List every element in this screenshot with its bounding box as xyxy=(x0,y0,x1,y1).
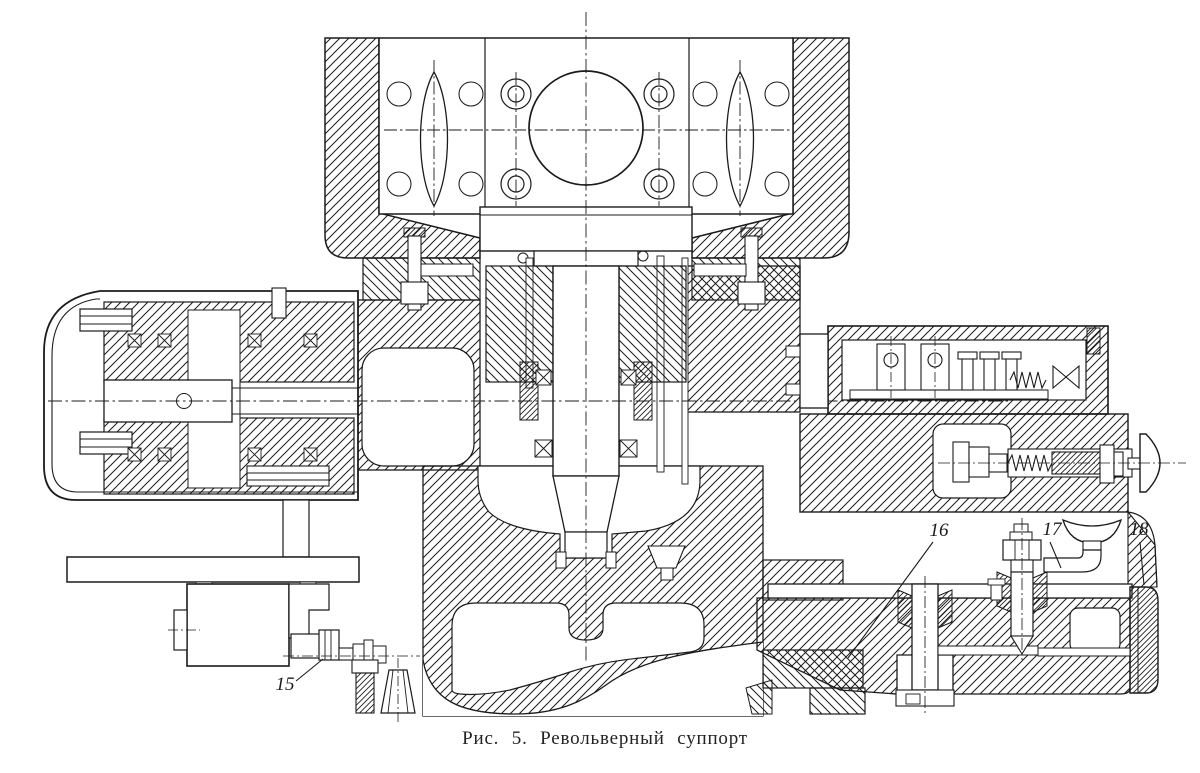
slide-end-cap xyxy=(1130,587,1158,693)
figure-caption: Рис. 5. Револьверный суппорт xyxy=(0,728,1200,750)
callout-15-label: 15 xyxy=(276,674,295,695)
left-gearbox xyxy=(44,288,358,500)
feed-stop-box xyxy=(786,326,1108,414)
callout-18-label: 18 xyxy=(1130,519,1150,540)
figure-page: 15 16 17 18 Рис. 5. Револьверный суппорт xyxy=(0,0,1200,773)
callout-17-label: 17 xyxy=(1043,519,1064,540)
callout-16-label: 16 xyxy=(930,520,950,541)
technical-drawing: 15 16 17 18 xyxy=(0,0,1200,773)
plunger-knob-assembly xyxy=(800,414,1186,512)
